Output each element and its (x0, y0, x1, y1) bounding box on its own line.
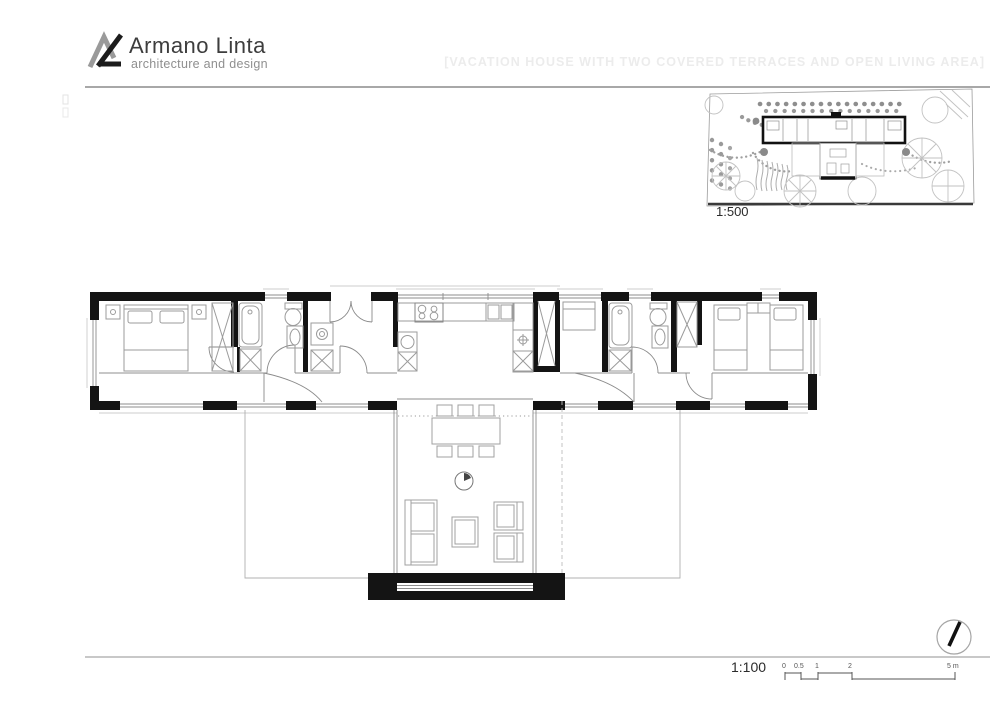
bathroom-left (239, 303, 303, 371)
scale-tick-1: 1 (815, 663, 819, 670)
kitchen (398, 301, 555, 372)
hall-right (563, 302, 595, 330)
scale-tick-0: 0 (782, 663, 786, 670)
bedroom-left (106, 303, 233, 371)
north-indicator-icon (937, 620, 971, 654)
drawing-canvas (0, 0, 1007, 712)
floor-plan (87, 286, 820, 600)
brand-tagline: architecture and design (131, 57, 268, 71)
bedroom-right (677, 302, 803, 370)
bathroom-right (609, 303, 668, 371)
site-plan-house (763, 112, 905, 179)
scale-tick-5m: 5 m (947, 663, 959, 670)
site-plan (705, 89, 974, 207)
exterior-walls (89, 291, 818, 411)
site-plan-scale-label: 1:500 (716, 204, 749, 219)
watermark-text: [VACATION HOUSE WITH TWO COVERED TERRACE… (444, 55, 985, 69)
living-wing (245, 399, 680, 600)
armano-linta-logo-icon (90, 35, 121, 67)
scale-tick-2: 2 (848, 663, 852, 670)
scale-tick-05: 0.5 (794, 663, 804, 670)
scale-bar (785, 672, 955, 680)
floor-plan-scale-label: 1:100 (731, 659, 766, 675)
doors (209, 301, 712, 402)
brand-title: Armano Linta (129, 33, 266, 59)
entry-hall (311, 323, 333, 371)
